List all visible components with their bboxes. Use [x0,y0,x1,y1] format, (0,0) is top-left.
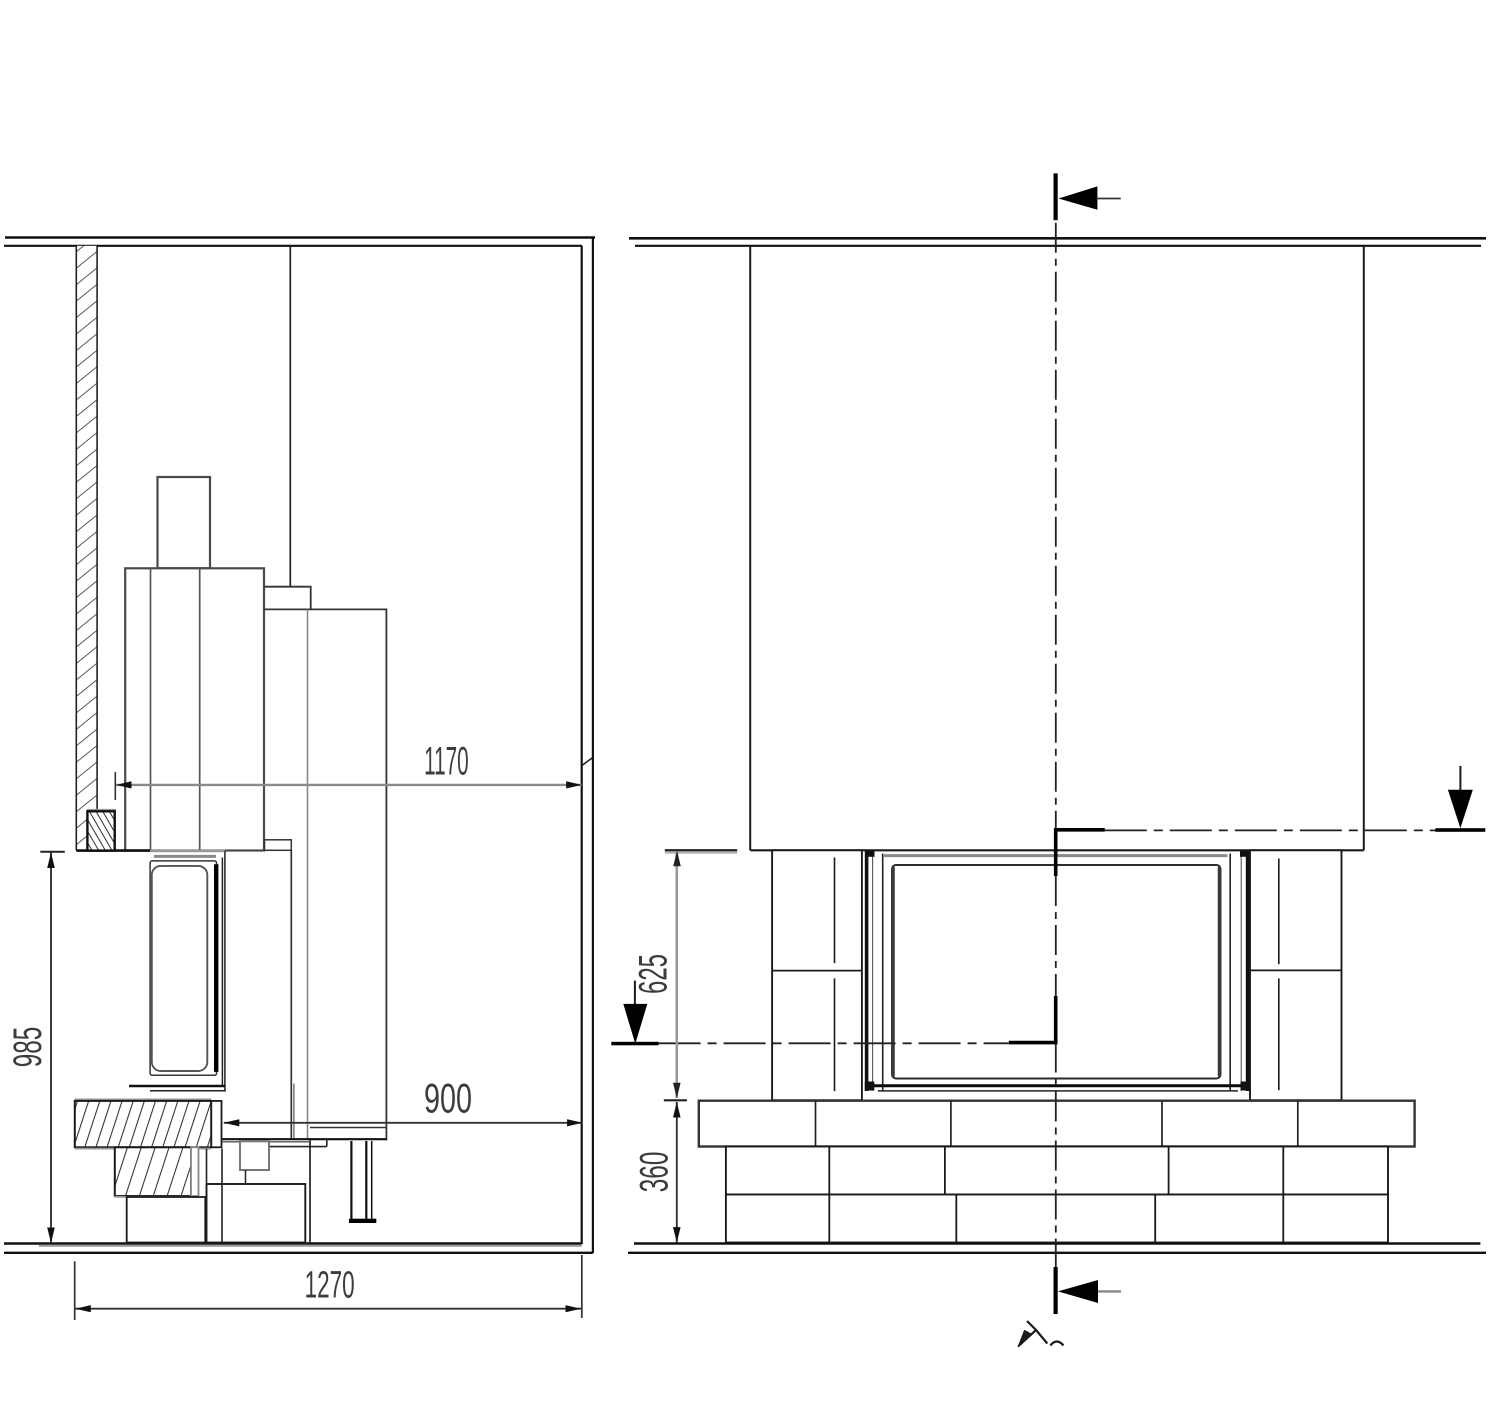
svg-text:360: 360 [632,1152,676,1193]
svg-text:900: 900 [424,1075,472,1122]
svg-text:985: 985 [6,1027,50,1068]
svg-text:1170: 1170 [424,739,469,783]
svg-text:625: 625 [632,954,676,994]
svg-text:1270: 1270 [305,1264,355,1306]
